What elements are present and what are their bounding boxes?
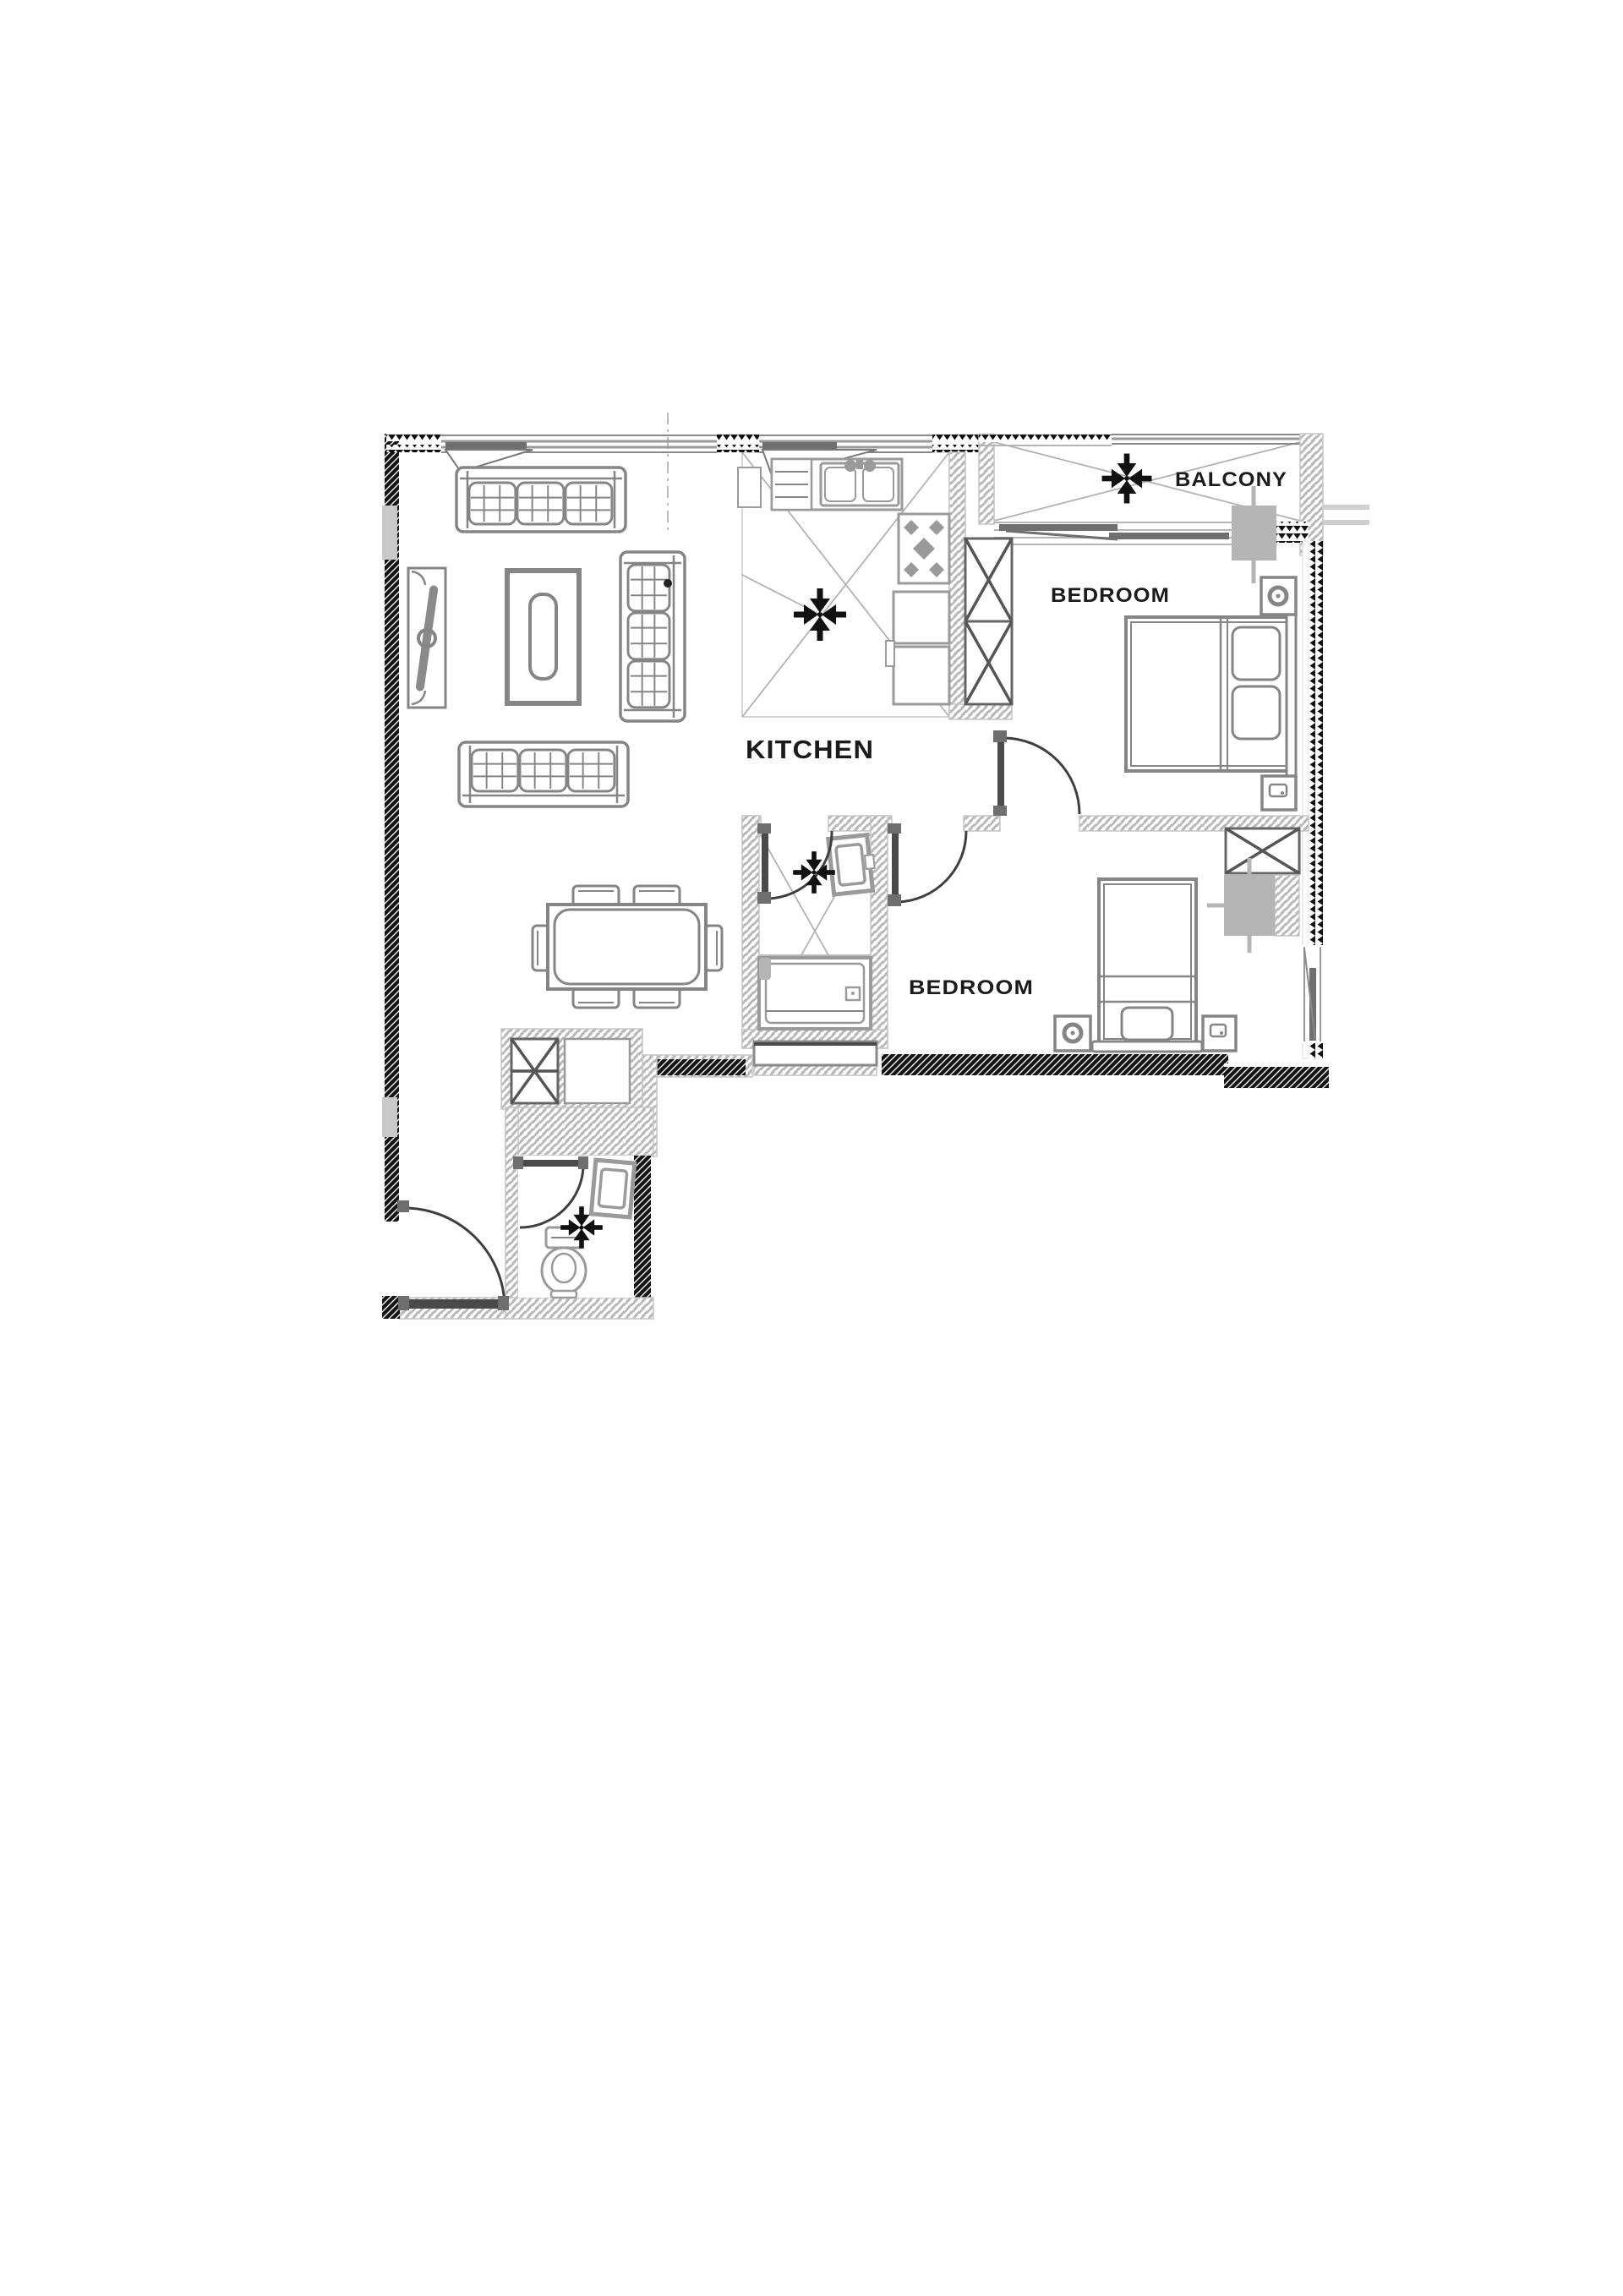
balcony-sliding-door — [994, 522, 1232, 544]
floor-plan: KITCHEN BEDROOM BEDROOM BALCONY — [0, 0, 1623, 2296]
pillow — [1122, 1008, 1172, 1040]
exhaust-fan-icon — [1102, 454, 1152, 504]
pillow — [1232, 627, 1280, 680]
wash-basin-icon — [828, 834, 877, 894]
ac-unit-icon — [1232, 486, 1276, 583]
bathroom-threshold — [754, 1041, 877, 1075]
floor-plan-page: KITCHEN BEDROOM BEDROOM BALCONY — [0, 0, 1623, 2296]
walls — [382, 434, 1369, 1319]
entrance-door-icon — [397, 1200, 509, 1310]
sofa-icon — [459, 742, 628, 806]
dining-table-icon — [548, 905, 706, 989]
footboard — [1092, 1041, 1202, 1052]
tv-console-icon — [408, 568, 445, 708]
door-swing-icon — [888, 823, 966, 906]
wardrobe-x-icon — [965, 538, 1012, 704]
kitchen-label: KITCHEN — [746, 735, 874, 764]
wall-bottom-bedroom2 — [882, 1054, 1228, 1075]
dining-area — [533, 886, 722, 1008]
utility-block — [501, 1029, 642, 1109]
wall-niche-bottom — [382, 1097, 397, 1137]
bathtub-icon — [759, 958, 871, 1029]
exhaust-fan-icon — [794, 588, 846, 641]
wall-balcony-corner — [1276, 522, 1309, 543]
wall-bedroom-divider — [742, 816, 1309, 831]
sofa-icon — [456, 467, 626, 532]
door-swing-icon — [993, 730, 1079, 816]
double-bed-icon — [1126, 610, 1296, 776]
nightstand — [1055, 1016, 1090, 1051]
single-bed-icon — [1092, 879, 1202, 1052]
wall-niche-top — [382, 506, 397, 560]
stove-icon — [899, 514, 949, 583]
nightstand — [1203, 1016, 1236, 1051]
nightstand — [1262, 776, 1296, 810]
pillow — [1232, 686, 1280, 739]
sofa-icon — [620, 552, 685, 721]
wash-basin-icon — [591, 1160, 634, 1217]
bedroom-2 — [888, 823, 1299, 1052]
wardrobe-x-icon — [1226, 828, 1299, 873]
coffee-table-icon — [507, 571, 579, 703]
kitchen-sink-icon — [821, 459, 899, 506]
balcony-railing — [979, 434, 1112, 442]
balcony-label: BALCONY — [1175, 468, 1287, 491]
wardrobe-x-icon — [511, 1039, 558, 1103]
window-bedroom2 — [1298, 945, 1325, 1043]
nightstand — [1261, 577, 1296, 615]
wall-kitchen-bedroom — [949, 452, 965, 717]
kitchen-cabinets — [886, 592, 949, 704]
living-room — [408, 467, 685, 806]
door-swing-icon — [757, 823, 832, 904]
bedroom-bottom-label: BEDROOM — [909, 976, 1034, 999]
headboard — [1287, 610, 1296, 776]
washing-machine-icon — [565, 1039, 630, 1103]
wall-bottom-step — [1224, 1067, 1329, 1088]
bedroom-top-label: BEDROOM — [1051, 584, 1170, 607]
